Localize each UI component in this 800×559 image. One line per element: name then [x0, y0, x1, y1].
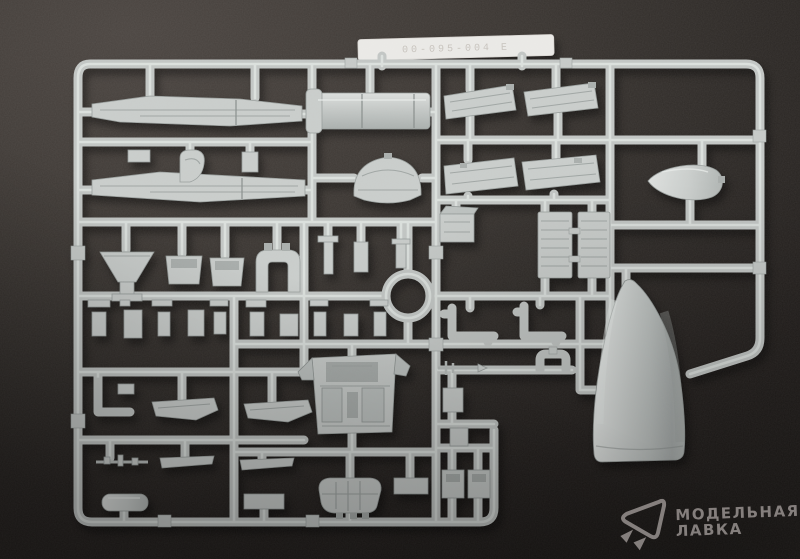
watermark-text: МОДЕЛЬНАЯ ЛАВКА: [675, 502, 800, 539]
watermark-line2: ЛАВКА: [676, 519, 800, 540]
sprue-parts-tree: 00-095-004 E: [0, 0, 800, 559]
paper-sail-logo-icon: [615, 494, 669, 554]
photo-of-model-kit-sprue: 00-095-004 E: [0, 0, 800, 559]
shop-watermark: МОДЕЛЬНАЯ ЛАВКА: [615, 487, 800, 557]
photo-grain-texture: [0, 0, 800, 559]
